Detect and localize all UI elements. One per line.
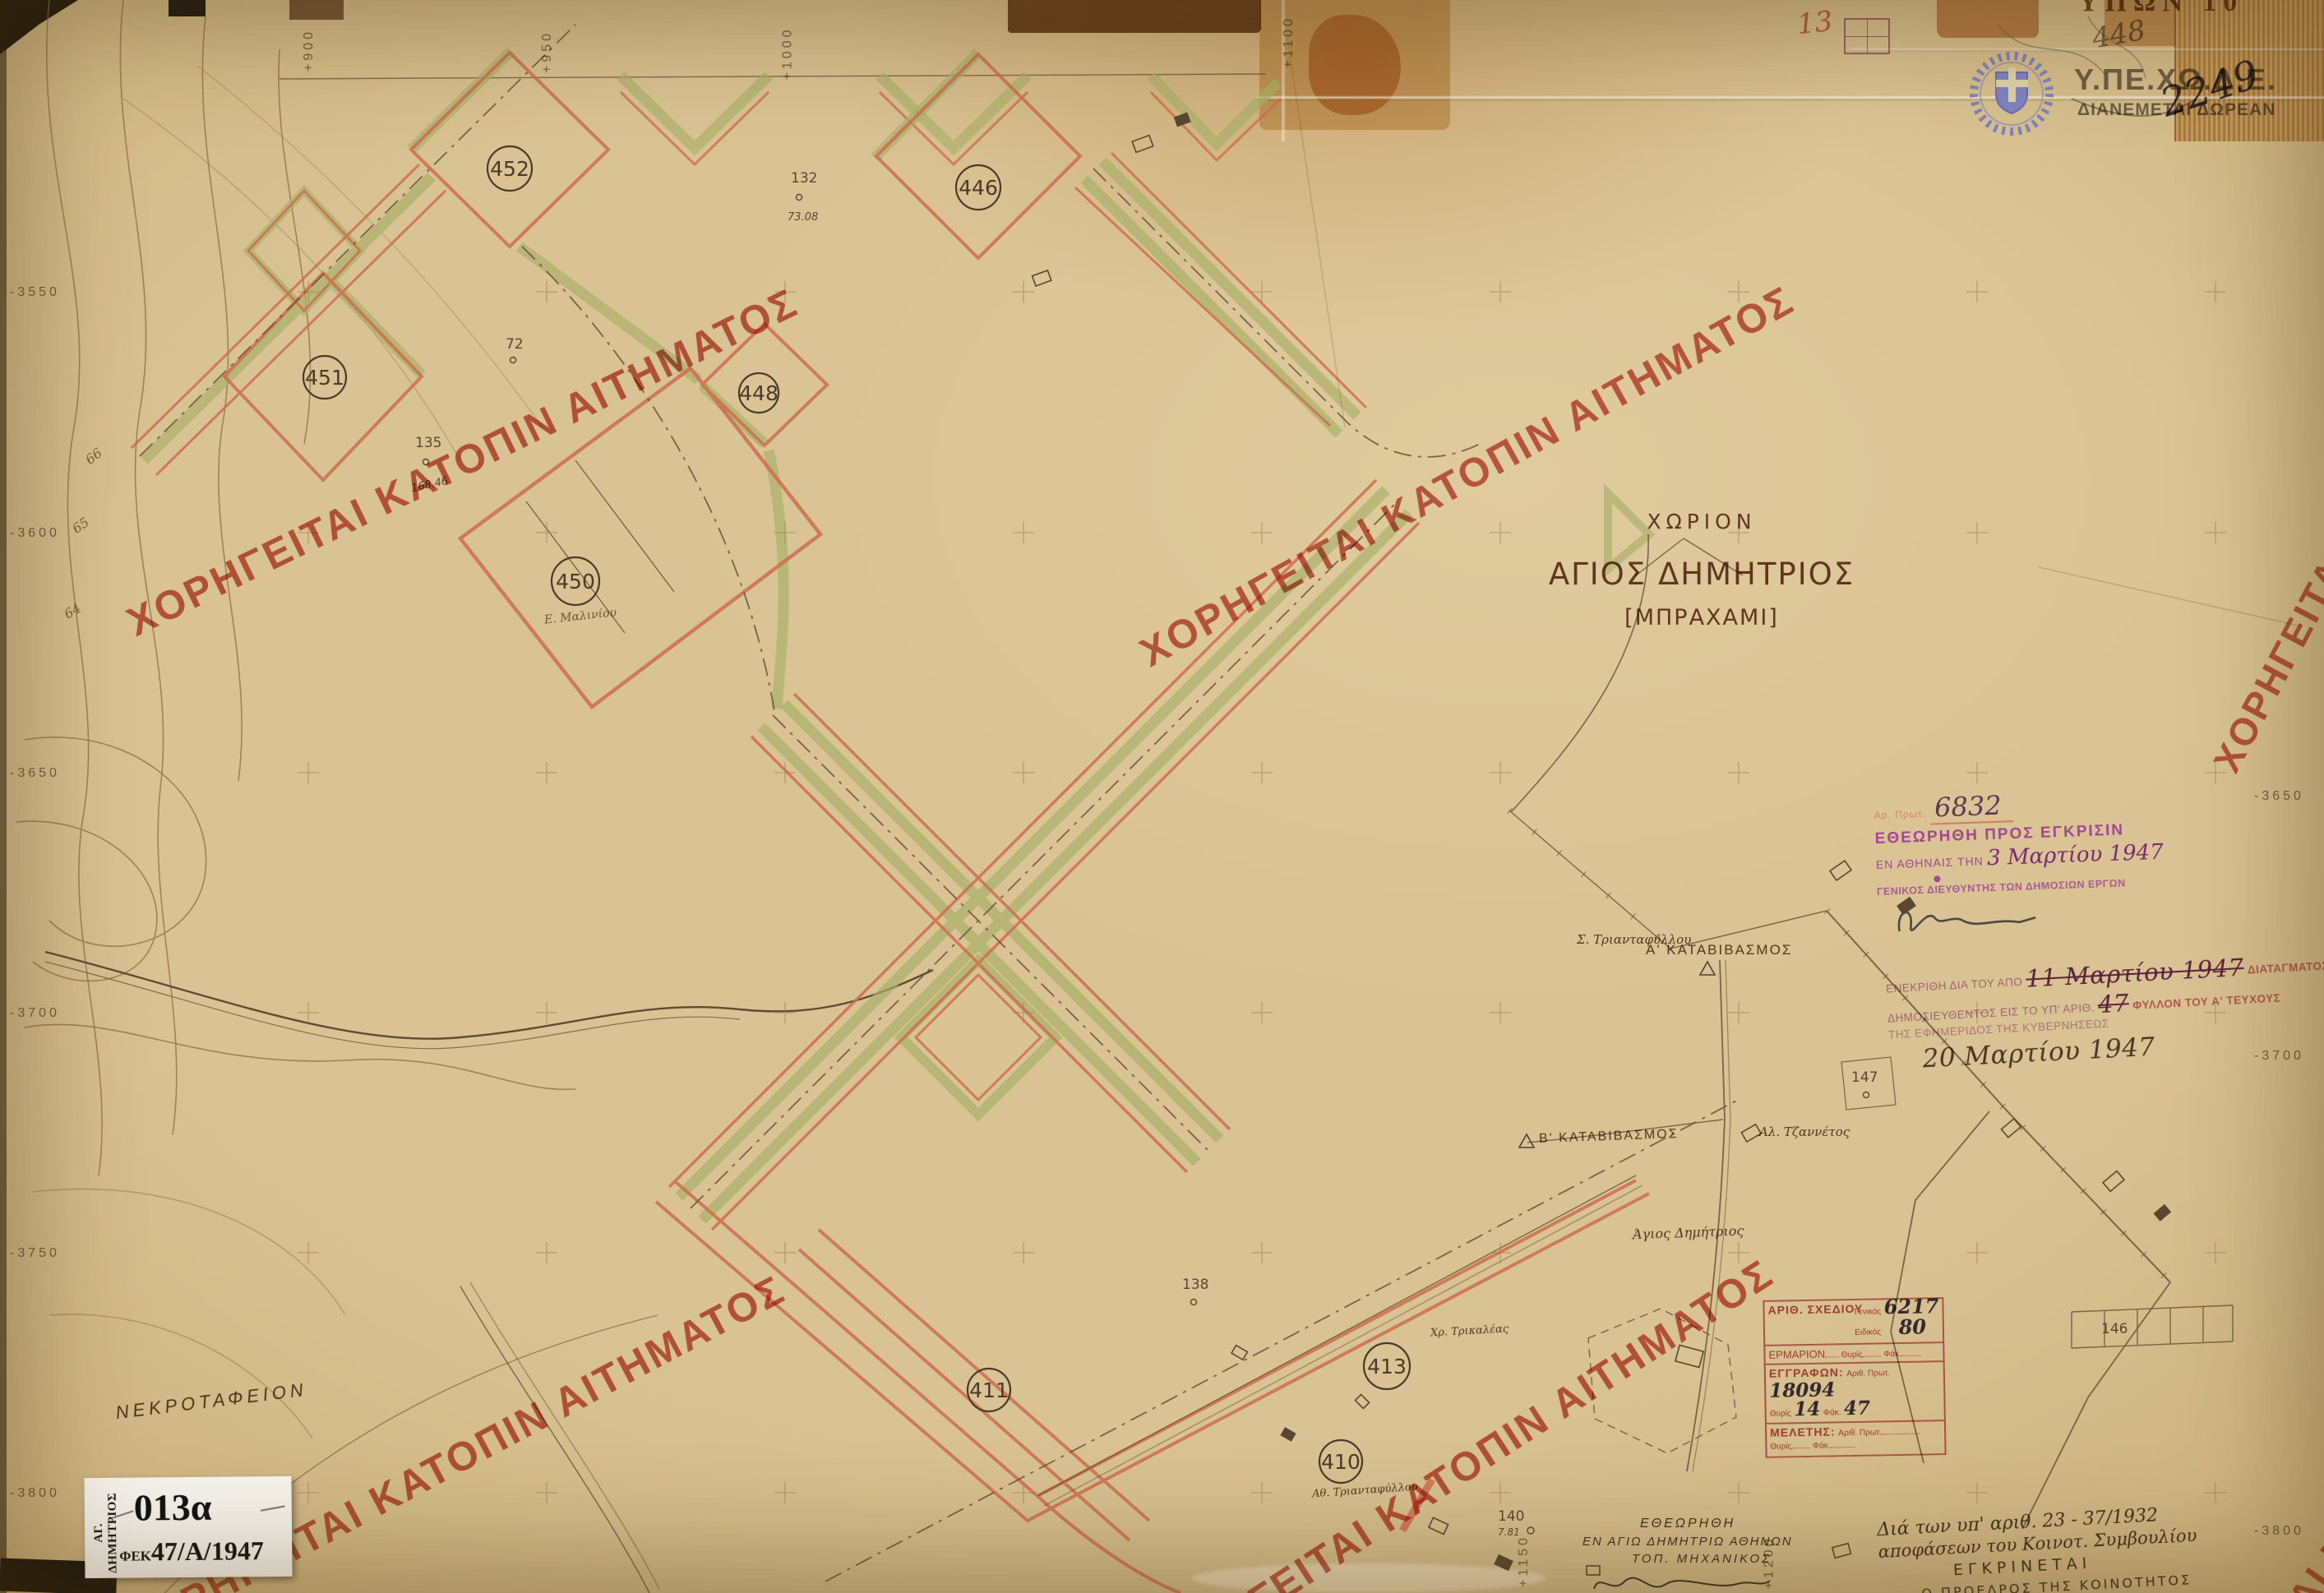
point-id: 132 [791,170,817,187]
surveyor-note: ΕΘΕΩΡΗΘΗ ΕΝ ΑΓΙΩ ΔΗΜΗΤΡΙΩ ΑΘΗΝΩΝ ΤΟΠ. ΜΗ… [1582,1517,1829,1593]
contour-label: 64 [62,600,84,622]
protocol-number: 6832 [1929,789,2013,825]
owner-label-2: Αλ. Τζαννέτος [1759,1124,1850,1139]
plan-number-label: ΑΡΙΘ. ΣΧΕΔΙΟΥ [1767,1302,1863,1317]
sheet-title-fragment: ΥΠΩΝ 10 [2078,0,2243,18]
registry-stamp: ΑΡΙΘ. ΣΧΕΔΙΟΥ Γενικός 6217 Ειδικός 80 ΕΡ… [1763,1297,1946,1458]
grid-label-bottom-1: +1150 [1517,1535,1532,1587]
grid-label-top-2: +950 [540,30,555,73]
village-title-alt: [ΜΠΡΑΧΑΜΙ] [1529,605,1874,630]
scanned-map-sheet: 452 446 451 448 450 413 411 410 72 132 7… [0,0,2324,1593]
surveyor-line3: ΤΟΠ. ΜΗΧΑΝΙΚΟΣ [1632,1552,1829,1566]
pencil-dash-right [261,1505,285,1511]
grid-label-left-2: -3600 [10,526,60,541]
grid-label-right-3: -3800 [2254,1524,2304,1539]
approval-bullet [1934,875,1940,882]
decree-stamp: ΕΝΕΚΡΙΘΗ ΔΙΑ ΤΟΥ ΑΠΟ 11 Μαρτίου 1947 ΔΙΑ… [1885,950,2285,1076]
block-number: 446 [959,176,998,200]
block-number: 413 [1367,1355,1407,1378]
doc-door-label: Θυρίς [1770,1409,1791,1418]
surveyor-line1: ΕΘΕΩΡΗΘΗ [1640,1517,1829,1531]
approval-place: ΕΝ ΑΘΗΝΑΙΣ ΤΗΝ [1876,854,1984,871]
grid-label-right-1: -3650 [2254,789,2304,804]
gazette-number: 47 [2097,989,2130,1018]
grid-label-left-1: -3550 [10,285,60,300]
approval-date: 3 Μαρτίου 1947 [1987,840,2165,870]
stream-lines [45,952,933,1049]
grid-label-left-5: -3750 [10,1246,60,1261]
point-elevation: 73.08 [788,211,818,224]
documents-label: ΕΓΓΡΑΦΩΝ: [1769,1365,1844,1380]
point-id: 138 [1182,1277,1208,1293]
fek-prefix: ΦΕΚ [119,1548,151,1563]
approval-stamp: Αρ. Πρωτ. 6832 ΕΘΕΩΡΗΘΗ ΠΡΟΣ ΕΓΚΡΙΣΙΝ ΕΝ… [1874,784,2158,949]
archive-label: ΑΓ. ΔΗΜΗΤΡΙΟΣ 013α ΦΕΚ47/Α/1947 [84,1476,292,1578]
point-id: 140 [1498,1508,1524,1525]
surveyor-signature-scrawl [1591,1566,1780,1593]
study-folder-label: Φάκ. [1813,1442,1831,1451]
grid-label-bottom-2: +1200 [1762,1536,1776,1590]
block-number: 450 [556,570,595,593]
doc-folder-label: Φάκ. [1823,1408,1841,1417]
block-number: 410 [1321,1450,1361,1474]
small-purple-stamp-box [1844,18,1890,54]
doc-door-value: 14 [1794,1398,1820,1421]
archive-number: 013α [134,1485,212,1530]
decree-line1-prefix: ΕΝΕΚΡΙΘΗ ΔΙΑ ΤΟΥ ΑΠΟ [1886,976,2023,995]
red-handwritten-note: 13 [1795,5,1834,41]
village-title-block: ΧΩΡΙΟΝ ΑΓΙΟΣ ΔΗΜΗΤΡΙΟΣ [ΜΠΡΑΧΑΜΙ] [1529,510,1874,630]
folder-label: Φάκ. [1883,1350,1901,1359]
grid-label-left-6: -3800 [10,1486,60,1501]
street-red-lines [132,53,1649,1593]
village-title-name: ΑΓΙΟΣ ΔΗΜΗΤΡΙΟΣ [1529,556,1874,592]
special-label: Ειδικός [1855,1327,1881,1337]
study-protocol-label: Αριθ. Πρωτ. [1838,1428,1882,1438]
top-boundary [280,74,1281,164]
signature-scrawl [1893,894,2059,944]
surveyor-line2: ΕΝ ΑΓΙΩ ΔΗΜΗΤΡΙΩ ΑΘΗΝΩΝ [1582,1535,1829,1549]
point-id: 147 [1851,1069,1878,1086]
grid-label-left-3: -3650 [10,766,60,781]
study-door-label: Θυρίς [1770,1442,1791,1451]
grid-label-top-1: +900 [302,29,316,72]
point-id: 72 [506,336,524,353]
fek-number: 47/Α/1947 [151,1535,264,1566]
ministry-logo-block: Υ.ΠΕ.ΧΩ.Δ.Ε. ΔΙΑΝΕΜΕΤΑΙ ΔΩΡΕΑΝ 2249 [1961,33,2314,148]
approval-official: ΓΕΝΙΚΟΣ ΔΙΕΥΘΥΝΤΗΣ ΤΩΝ ΔΗΜΟΣΙΩΝ ΕΡΓΩΝ [1877,876,2156,898]
point-id: 146 [2101,1321,2128,1337]
street-centerlines [140,25,1741,1581]
door-label: Θυρίς [1841,1351,1863,1360]
grid-label-left-4: -3700 [10,1006,60,1021]
contour-label: 66 [82,445,105,468]
block-number: 452 [490,157,529,181]
owner-label-1: Σ. Τριανταφύλλου [1577,932,1691,947]
grid-label-right-2: -3700 [2254,1049,2304,1064]
survey-triangles [1519,962,1715,1147]
village-title-prefix: ΧΩΡΙΟΝ [1529,510,1874,533]
doc-protocol-label: Αριθ. Πρωτ. [1846,1369,1890,1378]
block-number: 451 [305,366,344,390]
block-number: 448 [739,381,779,405]
greek-cross-wreath-icon [1961,33,2068,148]
block-number: 411 [969,1378,1009,1402]
special-plan-number: 80 [1898,1314,1926,1339]
doc-folder-value: 47 [1844,1397,1870,1420]
contour-lines [16,0,575,1438]
contour-label: 65 [69,515,92,537]
grid-label-top-4: +1100 [1282,16,1296,68]
archive-side-text: ΑΓ. ΔΗΜΗΤΡΙΟΣ [92,1484,121,1582]
protocol-prefix: Αρ. Πρωτ. [1874,808,1926,821]
study-label: ΜΕΛΕΤΗΣ: [1770,1424,1836,1438]
grid-label-top-3: +1000 [780,27,795,81]
cabinet-label: ΕΡΜΑΡΙΟΝ [1768,1348,1825,1361]
